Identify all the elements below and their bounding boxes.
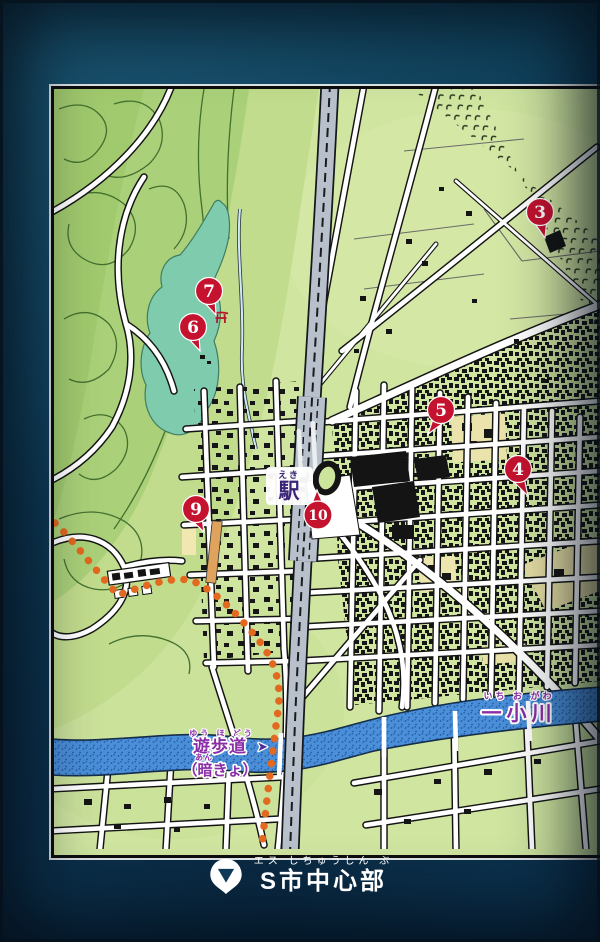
caption-text: エス しちゅうしん ぶ S市中心部 [254,857,394,894]
caption-title: S市中心部 [260,870,387,894]
svg-text:3: 3 [534,203,546,223]
river-furigana: いち お がわ [483,690,554,701]
page-background: えき 駅 いち お がわ 一小川 ゆう ほ どう 遊歩道 ➤ あん （暗きょ） … [0,0,600,942]
city-map: えき 駅 いち お がわ 一小川 ゆう ほ どう 遊歩道 ➤ あん （暗きょ） … [54,89,600,849]
svg-text:5: 5 [435,401,447,421]
river-label: いち お がわ 一小川 [482,690,557,725]
river-name: 一小川 [482,702,557,725]
culvert-furigana: あん [195,753,213,762]
caption-furigana: エス しちゅうしん ぶ [254,857,394,867]
station-furigana: えき [278,470,300,480]
svg-text:10: 10 [308,508,328,524]
promenade-arrow-icon: ➤ [257,739,268,754]
chapter-pin-icon [207,856,245,894]
culvert-text: （暗きょ） [182,761,257,779]
map-caption: エス しちゅうしん ぶ S市中心部 [0,856,600,894]
station-kanji: 駅 [279,480,301,503]
svg-text:4: 4 [512,460,524,480]
svg-text:9: 9 [190,500,202,520]
station-label: えき 駅 [266,467,313,505]
map-frame: えき 駅 いち お がわ 一小川 ゆう ほ どう 遊歩道 ➤ あん （暗きょ） … [51,86,600,858]
svg-text:6: 6 [187,318,199,338]
svg-text:7: 7 [203,282,215,302]
